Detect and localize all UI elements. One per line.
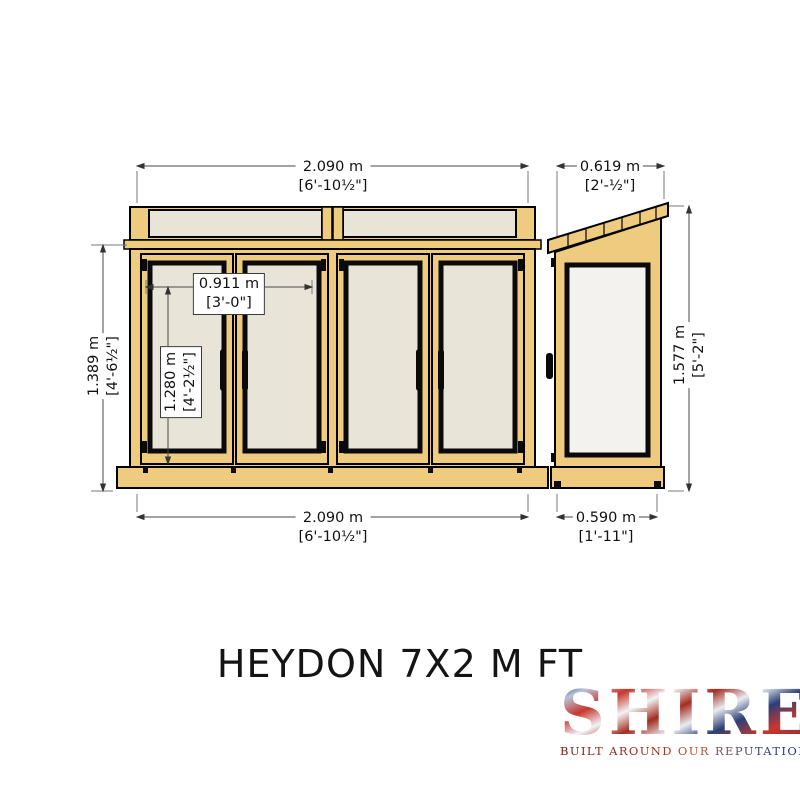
dim-label-side-height-right: 1.577 m [5'-2"] (671, 322, 709, 388)
hinge-icon (321, 441, 326, 453)
hinge-icon (551, 453, 556, 462)
dim-imperial: [4'-2½"] (181, 352, 200, 412)
side-door-handle (546, 353, 553, 379)
base-foot (654, 481, 661, 488)
side-base-rail (551, 467, 664, 488)
hinge-icon (551, 258, 556, 267)
side-view (546, 203, 668, 488)
dim-label-front-height-left: 1.389 m [4'-6½"] (85, 333, 123, 399)
door-4-glazing (441, 263, 515, 451)
dim-metric: 1.577 m (671, 325, 690, 385)
dim-metric: 2.090 m (299, 509, 368, 528)
dim-metric: 1.389 m (85, 336, 104, 396)
door-handle (416, 349, 422, 391)
hinge-icon (518, 259, 523, 271)
dim-imperial: [4'-6½"] (104, 336, 123, 396)
door-3-glazing (346, 263, 420, 451)
side-panel (567, 265, 648, 455)
hinge-icon (518, 441, 523, 453)
dim-metric: 0.590 m (576, 509, 636, 528)
shed-technical-drawing: 2.090 m [6'-10½"] 0.619 m [2'-½"] 1.389 … (0, 0, 800, 800)
hinge-icon (339, 441, 344, 453)
dim-label-door-width: 0.911 m [3'-0"] (193, 273, 265, 315)
dim-imperial: [1'-11"] (576, 528, 636, 547)
dim-imperial: [2'-½"] (580, 177, 640, 196)
window-mullion (333, 207, 343, 240)
top-window-glass-left (149, 210, 322, 237)
dim-metric: 0.911 m (199, 275, 259, 294)
top-window-glass-right (343, 210, 516, 237)
hinge-icon (321, 259, 326, 271)
shire-logo: SHIRE BUILT AROUND OUR REPUTATION (560, 684, 800, 758)
hinge-icon (142, 259, 147, 271)
dim-metric: 0.619 m (580, 158, 640, 177)
dim-imperial: [5'-2"] (690, 325, 709, 385)
front-top-window-band (124, 207, 541, 249)
dim-metric: 2.090 m (299, 158, 368, 177)
door-handle (242, 349, 248, 391)
base-foot (554, 481, 561, 488)
hinge-icon (142, 441, 147, 453)
door-handle (220, 349, 226, 391)
logo-tagline: BUILT AROUND OUR REPUTATION (560, 744, 800, 758)
dim-label-door-height: 1.280 m [4'-2½"] (160, 346, 202, 418)
logo-brand-text: SHIRE (560, 684, 800, 743)
door-3 (337, 254, 429, 464)
dim-imperial: [6'-10½"] (299, 177, 368, 196)
hinge-icon (339, 259, 344, 271)
dim-label-front-width-bottom: 2.090 m [6'-10½"] (296, 509, 371, 547)
dim-imperial: [6'-10½"] (299, 528, 368, 547)
window-sill-rail (124, 240, 541, 249)
door-4 (432, 254, 524, 464)
dim-label-side-depth-bottom: 0.590 m [1'-11"] (573, 509, 639, 547)
dim-label-side-width-top: 0.619 m [2'-½"] (577, 158, 643, 196)
dim-imperial: [3'-0"] (199, 294, 259, 313)
window-mullion (322, 207, 332, 240)
dim-metric: 1.280 m (162, 352, 181, 412)
dim-label-front-width-top: 2.090 m [6'-10½"] (296, 158, 371, 196)
door-handle (438, 349, 444, 391)
